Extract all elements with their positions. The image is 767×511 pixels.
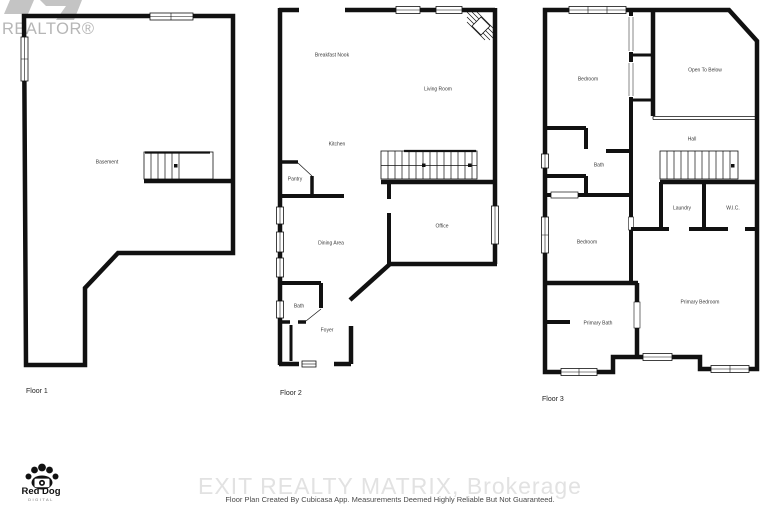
room-label-bath-f3: Bath (594, 164, 604, 169)
floor-2-plan (277, 7, 499, 368)
room-label-wic: W.I.C. (726, 207, 740, 212)
room-label-breakfast-nook: Breakfast Nook (315, 54, 349, 59)
room-label-basement: Basement (96, 161, 119, 166)
floor-3-plan (542, 7, 758, 376)
floor-1-windows (21, 13, 193, 81)
floor-2-caption: Floor 2 (280, 390, 302, 397)
room-label-bedroom-2: Bedroom (577, 241, 597, 246)
room-label-primary-bedroom: Primary Bedroom (681, 301, 720, 306)
corner-fireplace-icon (467, 12, 495, 40)
room-label-pantry: Pantry (288, 178, 302, 183)
room-label-hall: Hall (688, 138, 697, 143)
room-label-bedroom-1: Bedroom (578, 78, 598, 83)
floor-3-stairs-icon (660, 151, 738, 179)
room-label-office: Office (436, 225, 449, 230)
floorplan-page: REALTOR® EXIT REALTY MATRIX, Brokerage (0, 0, 767, 511)
floor-2-stairs-icon (381, 151, 477, 179)
room-label-laundry: Laundry (673, 207, 691, 212)
floor-1-plan (21, 13, 233, 365)
red-dog-wordmark: Red Dog (10, 487, 72, 497)
floor-1-stairs-icon (144, 152, 213, 179)
floor-3-windows (542, 7, 750, 376)
room-label-kitchen: Kitchen (329, 143, 346, 148)
room-label-living-room: Living Room (424, 88, 452, 93)
room-label-primary-bath: Primary Bath (584, 322, 613, 327)
room-label-open-to-below: Open To Below (688, 69, 722, 74)
room-label-bath-f2: Bath (294, 305, 304, 310)
floor-3-caption: Floor 3 (542, 396, 564, 403)
floorplan-drawing (0, 0, 767, 511)
floor-1-caption: Floor 1 (26, 388, 48, 395)
room-label-dining-area: Dining Area (318, 242, 344, 247)
disclaimer-text: Floor Plan Created By Cubicasa App. Meas… (150, 495, 630, 504)
room-label-foyer: Foyer (321, 329, 334, 334)
red-dog-sublabel: DIGITAL (10, 498, 72, 502)
